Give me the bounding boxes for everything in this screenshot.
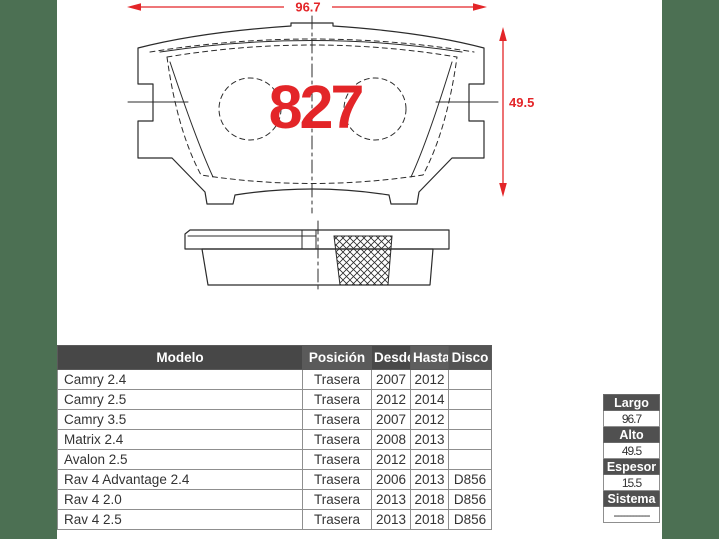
cell-modelo: Camry 2.5 — [58, 390, 303, 410]
cell-desde: 2007 — [372, 410, 411, 430]
cell-desde: 2013 — [372, 490, 411, 510]
cell-posicion: Trasera — [303, 450, 372, 470]
cell-posicion: Trasera — [303, 410, 372, 430]
cell-posicion: Trasera — [303, 490, 372, 510]
cell-disco: D856 — [449, 470, 492, 490]
cell-hasta: 2018 — [411, 510, 449, 530]
brake-pad-technical-drawing: 96.7 49.5 827 — [0, 0, 719, 340]
cell-hasta: 2018 — [411, 490, 449, 510]
cell-disco — [449, 410, 492, 430]
cell-posicion: Trasera — [303, 390, 372, 410]
cell-hasta: 2013 — [411, 470, 449, 490]
cell-posicion: Trasera — [303, 430, 372, 450]
cell-hasta: 2014 — [411, 390, 449, 410]
column-header-desde: Desde — [372, 346, 411, 370]
column-header-posicion: Posición — [303, 346, 372, 370]
width-dimension: 96.7 — [127, 0, 487, 15]
table-row: Matrix 2.4 Trasera 2008 2013 — [58, 430, 492, 450]
product-page: { "page": { "side_band_color": "#4c7053"… — [0, 0, 719, 539]
applications-header-row: Modelo Posición Desde Hasta Disco — [58, 346, 492, 370]
cell-disco — [449, 370, 492, 390]
table-row: Rav 4 Advantage 2.4 Trasera 2006 2013 D8… — [58, 470, 492, 490]
cell-hasta: 2013 — [411, 430, 449, 450]
spec-label-alto: Alto — [604, 427, 660, 443]
cell-modelo: Avalon 2.5 — [58, 450, 303, 470]
cell-desde: 2012 — [372, 450, 411, 470]
column-header-hasta: Hasta — [411, 346, 449, 370]
table-row: Camry 2.4 Trasera 2007 2012 — [58, 370, 492, 390]
spec-label-espesor: Espesor — [604, 459, 660, 475]
cell-disco — [449, 430, 492, 450]
cell-hasta: 2012 — [411, 370, 449, 390]
friction-hatch-area — [334, 236, 392, 285]
cell-modelo: Matrix 2.4 — [58, 430, 303, 450]
height-dimension: 49.5 — [499, 27, 534, 197]
cell-desde: 2007 — [372, 370, 411, 390]
cell-modelo: Camry 2.4 — [58, 370, 303, 390]
cell-hasta: 2018 — [411, 450, 449, 470]
cell-desde: 2013 — [372, 510, 411, 530]
side-view-outline — [185, 221, 449, 293]
spec-label-sistema: Sistema — [604, 491, 660, 507]
table-row: Camry 2.5 Trasera 2012 2014 — [58, 390, 492, 410]
part-number: 827 — [269, 73, 363, 141]
width-dimension-label: 96.7 — [295, 0, 320, 15]
table-row: Camry 3.5 Trasera 2007 2012 — [58, 410, 492, 430]
cell-disco: D856 — [449, 510, 492, 530]
cell-disco — [449, 450, 492, 470]
spec-value-sistema: ------------ — [604, 507, 660, 523]
table-row: Rav 4 2.0 Trasera 2013 2018 D856 — [58, 490, 492, 510]
spec-label-largo: Largo — [604, 395, 660, 411]
cell-desde: 2008 — [372, 430, 411, 450]
spec-value-espesor: 15.5 — [604, 475, 660, 491]
table-row: Avalon 2.5 Trasera 2012 2018 — [58, 450, 492, 470]
cell-desde: 2012 — [372, 390, 411, 410]
cell-hasta: 2012 — [411, 410, 449, 430]
cell-disco: D856 — [449, 490, 492, 510]
applications-table: Modelo Posición Desde Hasta Disco Camry … — [57, 345, 492, 530]
height-dimension-label: 49.5 — [509, 95, 534, 110]
cell-posicion: Trasera — [303, 370, 372, 390]
cell-disco — [449, 390, 492, 410]
cell-modelo: Rav 4 2.5 — [58, 510, 303, 530]
cell-modelo: Camry 3.5 — [58, 410, 303, 430]
column-header-modelo: Modelo — [58, 346, 303, 370]
column-header-disco: Disco — [449, 346, 492, 370]
specs-table: Largo 96.7 Alto 49.5 Espesor 15.5 Sistem… — [603, 394, 660, 523]
cell-modelo: Rav 4 Advantage 2.4 — [58, 470, 303, 490]
cell-desde: 2006 — [372, 470, 411, 490]
cell-posicion: Trasera — [303, 510, 372, 530]
table-row: Rav 4 2.5 Trasera 2013 2018 D856 — [58, 510, 492, 530]
spec-value-alto: 49.5 — [604, 443, 660, 459]
cell-posicion: Trasera — [303, 470, 372, 490]
cell-modelo: Rav 4 2.0 — [58, 490, 303, 510]
spec-value-largo: 96.7 — [604, 411, 660, 427]
